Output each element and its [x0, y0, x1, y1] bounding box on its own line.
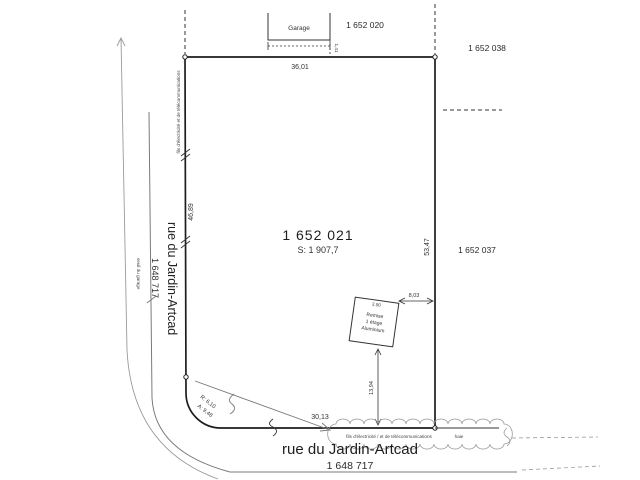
survey-plan-svg: Garage 1,41 1 652 020 1 652 038 1 652 03… — [0, 0, 640, 480]
corner-marker-icon — [433, 55, 437, 59]
street-name-left: rue du Jardin-Artcad — [165, 222, 179, 335]
far-left-note: seuil du garage — [136, 258, 141, 290]
main-lot-area: S: 1 907,7 — [297, 245, 338, 255]
main-lot-number: 1 652 021 — [282, 227, 353, 243]
lot-number-right: 1 652 037 — [458, 245, 496, 255]
street-name-bottom: rue du Jardin-Artcad — [282, 441, 418, 458]
cadastral-plan: Garage 1,41 1 652 020 1 652 038 1 652 03… — [0, 0, 640, 480]
dimension-bottom: 30,13 — [311, 414, 329, 421]
utility-note-left: fils d'électricité et de télécommunicati… — [176, 70, 181, 154]
lot-number-top: 1 652 020 — [346, 20, 384, 30]
street-number-left: 1 648 717 — [150, 258, 160, 298]
dimension-shed-to-bottom: 13,94 — [369, 381, 375, 395]
dimension-left: 46,89 — [188, 203, 195, 221]
garage-offset-dim: 1,41 — [334, 44, 339, 53]
lot-number-top-right: 1 652 038 — [468, 43, 506, 53]
corner-marker-icon — [183, 55, 187, 59]
dimension-right: 53,47 — [424, 238, 431, 256]
corner-marker-icon — [184, 375, 188, 379]
dimension-top: 36,01 — [291, 64, 309, 71]
hedge-label: haie — [455, 434, 464, 439]
street-number-bottom: 1 648 717 — [327, 460, 374, 472]
utility-note-bottom: fils d'électricité / et de télécommunica… — [346, 434, 432, 439]
dimension-shed-to-right: 8,03 — [409, 293, 420, 299]
garage-label: Garage — [288, 25, 310, 32]
